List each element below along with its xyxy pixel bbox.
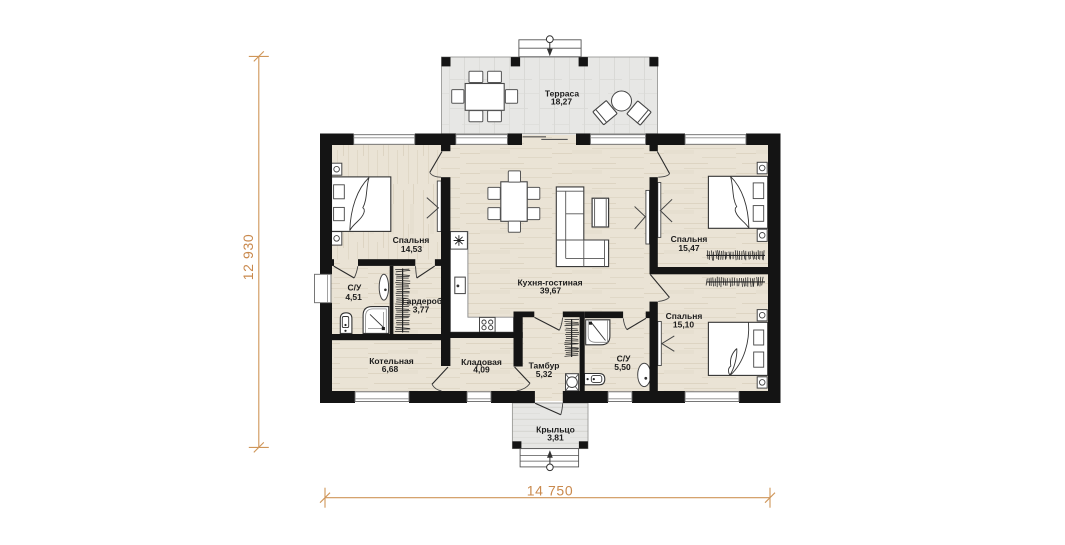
svg-text:5,50: 5,50	[614, 362, 631, 372]
svg-text:С/У: С/У	[348, 282, 363, 292]
svg-text:4,51: 4,51	[345, 292, 362, 302]
svg-text:15,47: 15,47	[678, 243, 700, 253]
svg-text:15,10: 15,10	[673, 320, 695, 330]
svg-text:3,81: 3,81	[547, 432, 564, 442]
svg-text:18,27: 18,27	[551, 96, 573, 106]
svg-text:6,68: 6,68	[382, 364, 399, 374]
svg-text:3,77: 3,77	[413, 305, 430, 315]
svg-text:12 930: 12 930	[240, 234, 256, 280]
svg-text:14,53: 14,53	[401, 244, 423, 254]
svg-text:39,67: 39,67	[540, 286, 562, 296]
svg-text:5,32: 5,32	[536, 369, 553, 379]
svg-text:4,09: 4,09	[473, 365, 490, 375]
svg-text:14 750: 14 750	[527, 482, 573, 498]
